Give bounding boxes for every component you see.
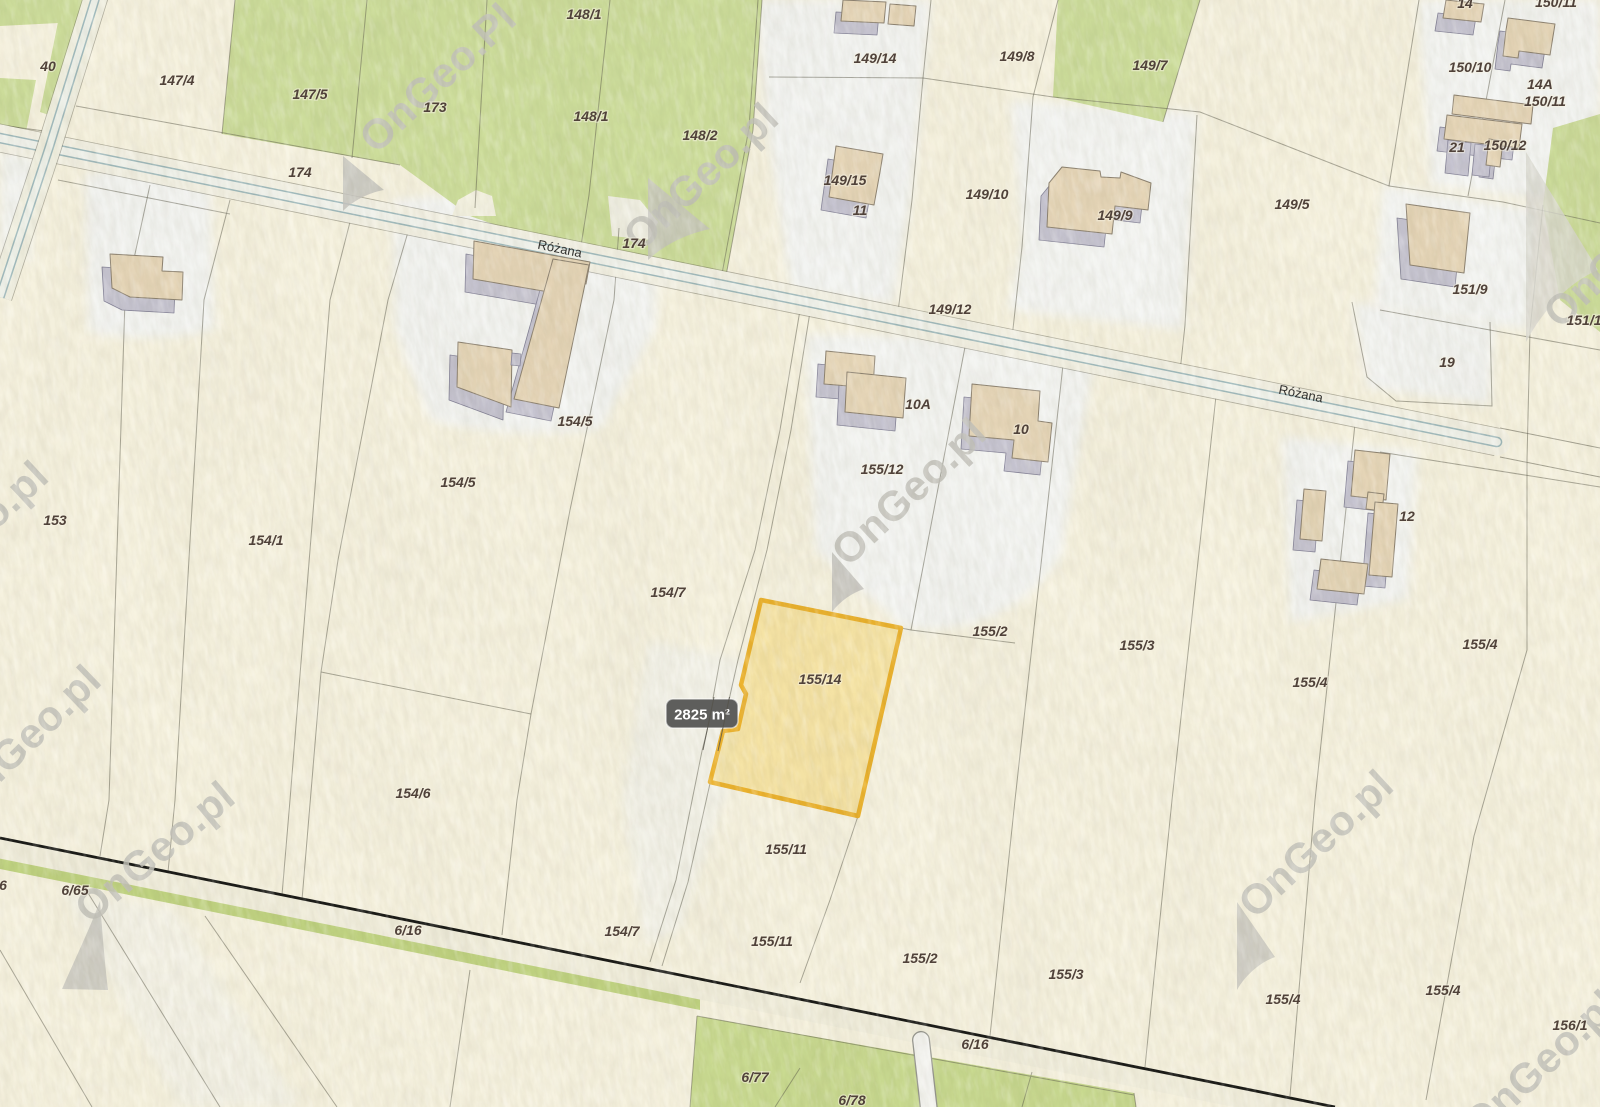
svg-text:154/6: 154/6 xyxy=(395,785,430,801)
svg-text:155/3: 155/3 xyxy=(1048,966,1083,982)
svg-text:6: 6 xyxy=(0,877,7,893)
svg-text:148/1: 148/1 xyxy=(573,108,608,124)
svg-text:148/2: 148/2 xyxy=(682,127,717,143)
svg-text:150/11: 150/11 xyxy=(1524,93,1566,109)
svg-text:149/7: 149/7 xyxy=(1132,57,1168,73)
svg-text:149/5: 149/5 xyxy=(1274,196,1309,212)
svg-text:156/1: 156/1 xyxy=(1552,1017,1587,1033)
svg-text:10A: 10A xyxy=(905,396,931,412)
svg-text:154/5: 154/5 xyxy=(557,413,592,429)
svg-text:6/65: 6/65 xyxy=(61,882,88,898)
svg-text:11: 11 xyxy=(853,202,868,218)
svg-text:155/4: 155/4 xyxy=(1462,636,1497,652)
svg-text:148/1: 148/1 xyxy=(566,6,601,22)
svg-text:155/4: 155/4 xyxy=(1265,991,1300,1007)
svg-text:155/11: 155/11 xyxy=(751,933,793,949)
svg-text:173: 173 xyxy=(423,99,447,115)
svg-text:149/14: 149/14 xyxy=(854,50,897,66)
svg-text:19: 19 xyxy=(1439,354,1455,370)
svg-text:14: 14 xyxy=(1457,0,1473,11)
svg-text:155/3: 155/3 xyxy=(1119,637,1154,653)
svg-text:149/12: 149/12 xyxy=(929,301,972,317)
svg-text:21: 21 xyxy=(1448,139,1465,155)
svg-text:150/11: 150/11 xyxy=(1535,0,1577,10)
svg-text:155/14: 155/14 xyxy=(799,671,842,687)
svg-text:150/12: 150/12 xyxy=(1484,137,1527,153)
svg-text:6/77: 6/77 xyxy=(741,1069,769,1085)
svg-text:14A: 14A xyxy=(1527,76,1553,92)
svg-text:12: 12 xyxy=(1399,508,1415,524)
svg-text:155/11: 155/11 xyxy=(765,841,807,857)
svg-text:149/9: 149/9 xyxy=(1097,207,1132,223)
svg-text:155/4: 155/4 xyxy=(1425,982,1460,998)
svg-text:155/2: 155/2 xyxy=(902,950,937,966)
svg-text:155/2: 155/2 xyxy=(972,623,1007,639)
svg-text:10: 10 xyxy=(1013,421,1029,437)
svg-text:174: 174 xyxy=(288,164,312,180)
svg-text:2825 m²: 2825 m² xyxy=(674,707,730,724)
svg-text:154/1: 154/1 xyxy=(248,532,283,548)
svg-text:153: 153 xyxy=(43,512,67,528)
svg-text:149/15: 149/15 xyxy=(824,172,867,188)
svg-text:174: 174 xyxy=(622,235,646,251)
svg-text:6/16: 6/16 xyxy=(394,922,421,938)
svg-text:149/10: 149/10 xyxy=(966,186,1009,202)
svg-text:40: 40 xyxy=(39,58,56,74)
svg-text:6/16: 6/16 xyxy=(961,1036,988,1052)
svg-text:155/12: 155/12 xyxy=(861,461,904,477)
svg-text:155/4: 155/4 xyxy=(1292,674,1327,690)
svg-text:147/4: 147/4 xyxy=(159,72,194,88)
svg-text:6/78: 6/78 xyxy=(838,1092,865,1107)
svg-text:149/8: 149/8 xyxy=(999,48,1034,64)
svg-text:154/7: 154/7 xyxy=(604,923,640,939)
svg-text:147/5: 147/5 xyxy=(292,86,327,102)
svg-text:151/9: 151/9 xyxy=(1452,281,1487,297)
svg-text:150/10: 150/10 xyxy=(1449,59,1492,75)
svg-text:154/7: 154/7 xyxy=(650,584,686,600)
svg-text:154/5: 154/5 xyxy=(440,474,475,490)
svg-text:151/1: 151/1 xyxy=(1566,312,1600,328)
